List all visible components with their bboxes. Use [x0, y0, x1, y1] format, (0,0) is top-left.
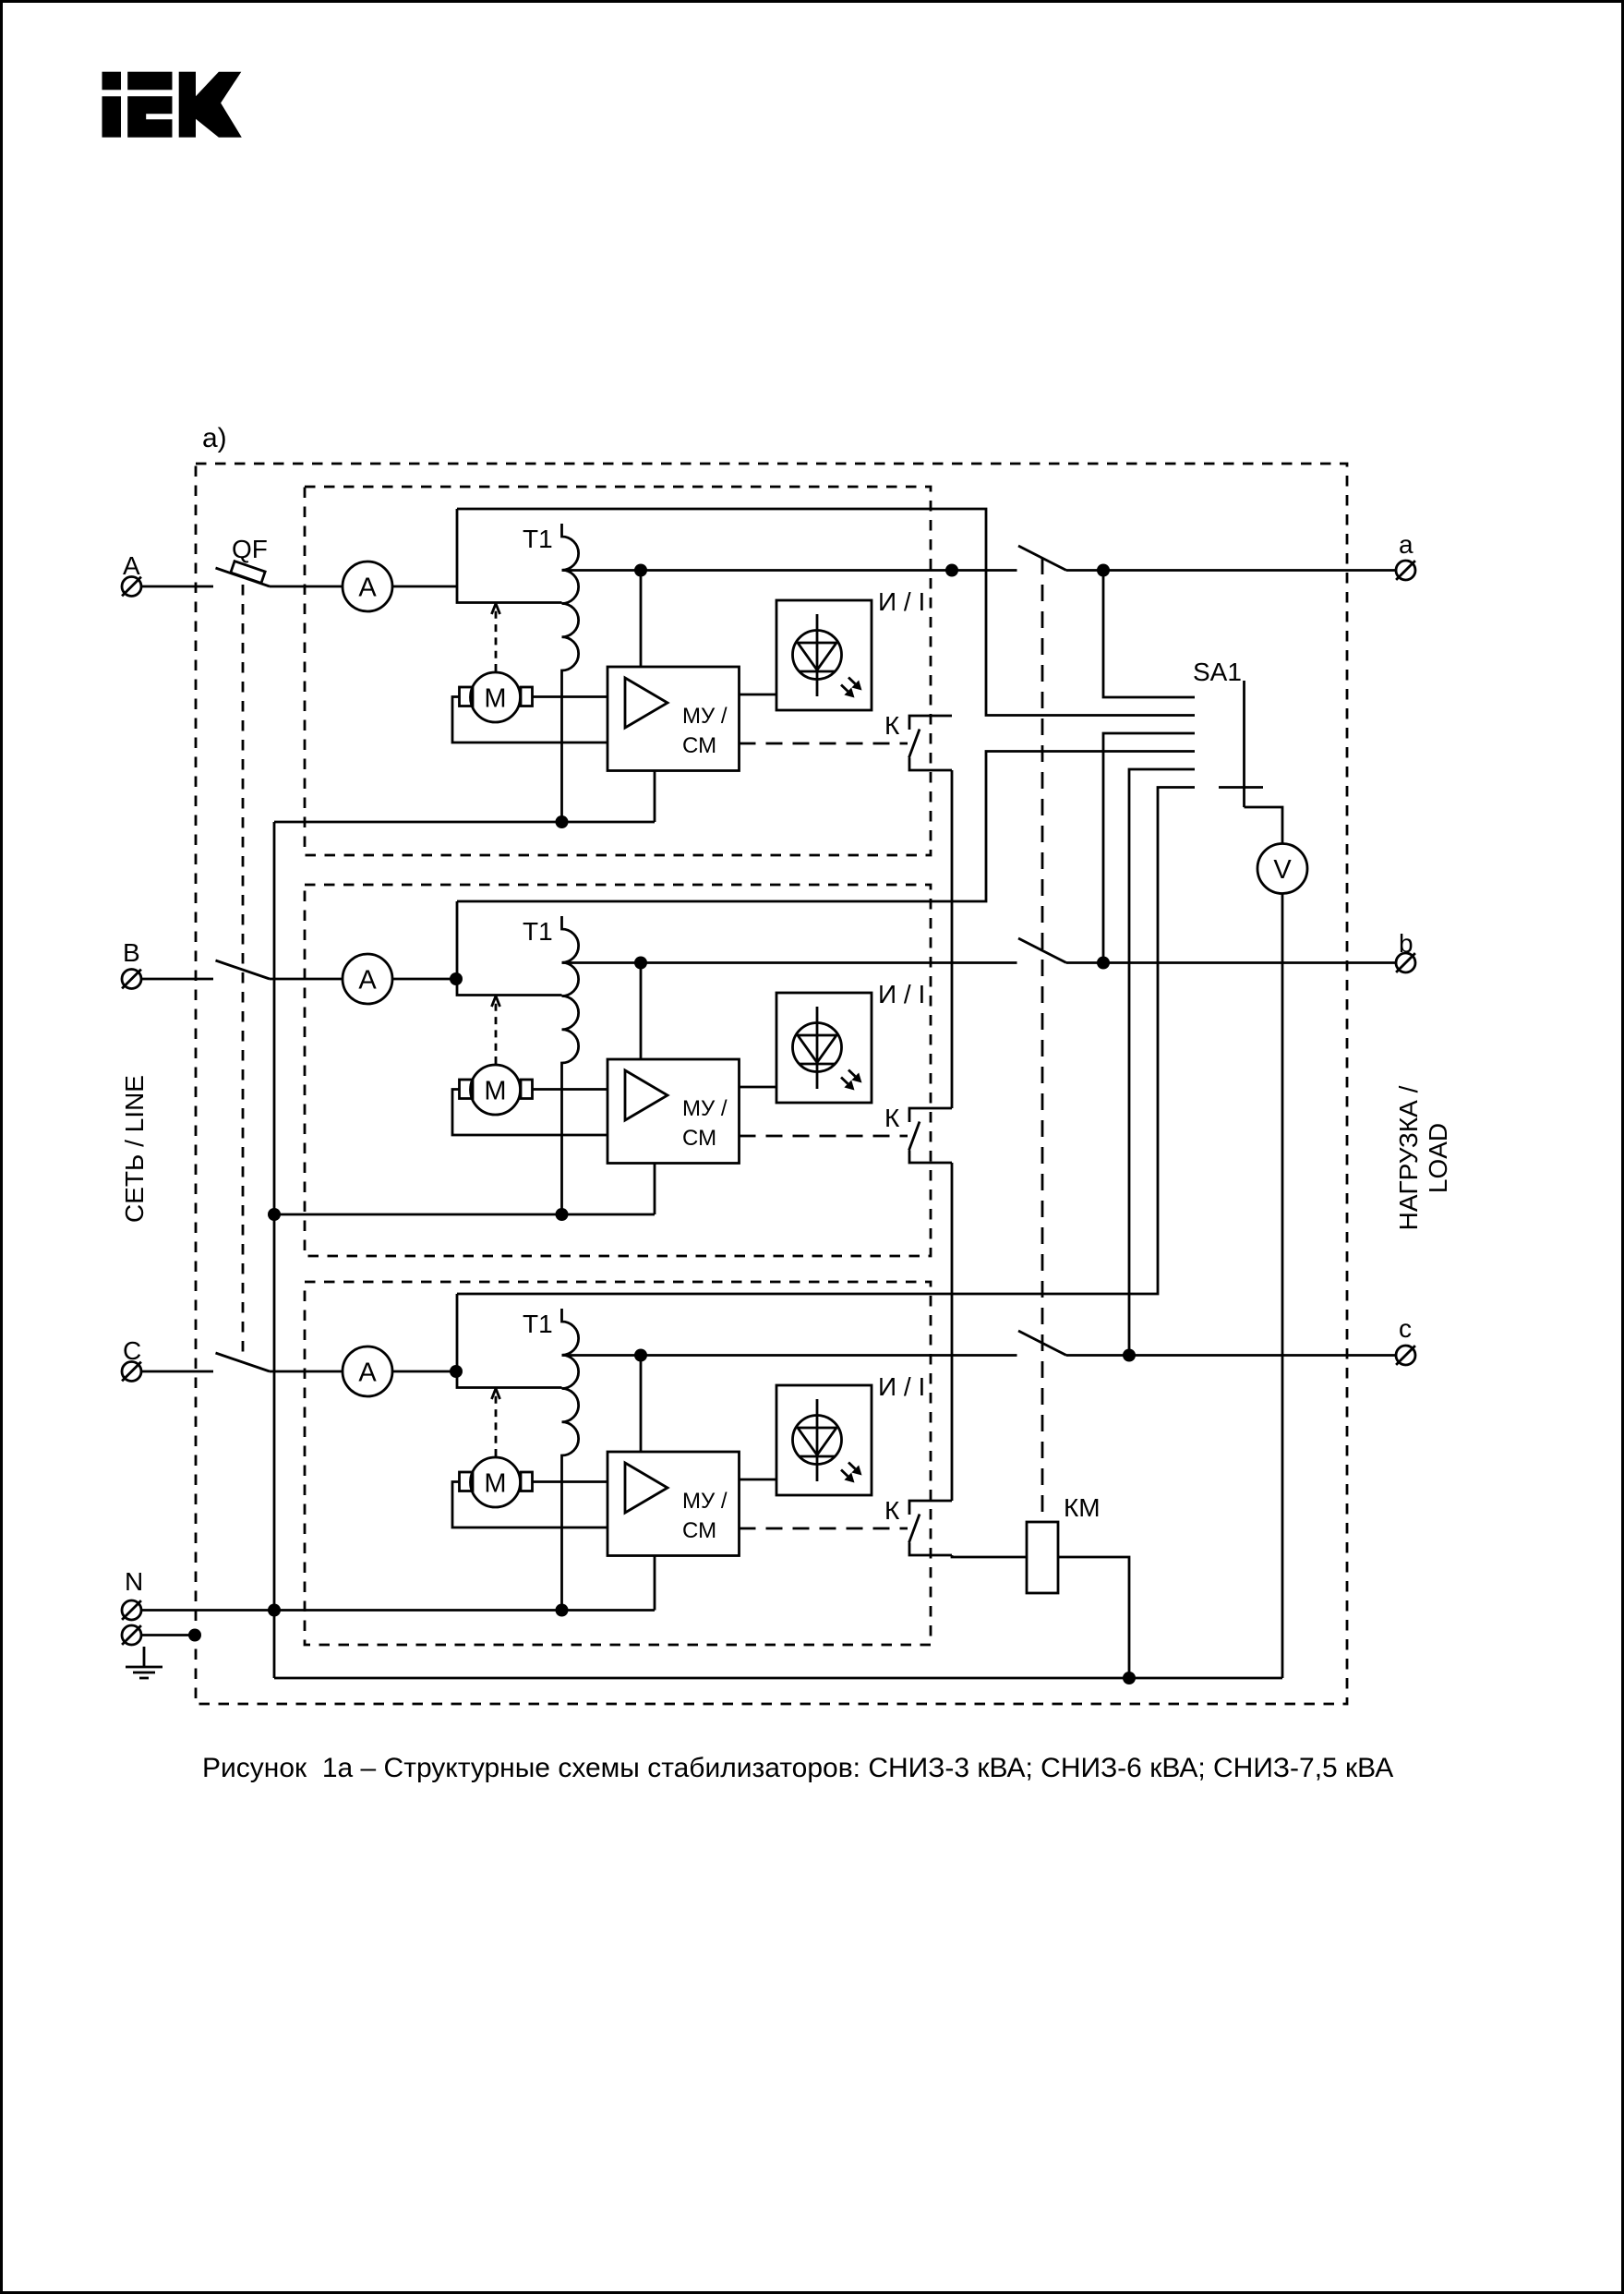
- svg-text:К: К: [884, 711, 900, 740]
- svg-text:КМ: КМ: [1064, 1493, 1101, 1522]
- svg-text:А: А: [123, 551, 140, 580]
- svg-text:c: c: [1399, 1314, 1412, 1343]
- svg-text:А: А: [358, 1358, 377, 1388]
- svg-text:СЕТЬ / LINE: СЕТЬ / LINE: [120, 1075, 149, 1223]
- svg-text:МУ /: МУ /: [682, 704, 728, 729]
- svg-text:К: К: [884, 1496, 900, 1525]
- svg-text:С: С: [123, 1336, 141, 1365]
- svg-text:И / I: И / I: [878, 980, 925, 1008]
- svg-text:a: a: [1399, 530, 1413, 559]
- svg-text:М: М: [484, 684, 506, 714]
- svg-text:LOAD: LOAD: [1424, 1123, 1452, 1193]
- svg-text:МУ /: МУ /: [682, 1096, 728, 1121]
- svg-text:СМ: СМ: [682, 1126, 716, 1151]
- svg-text:НАГРУЗКА /: НАГРУЗКА /: [1394, 1085, 1423, 1230]
- svg-text:СМ: СМ: [682, 1518, 716, 1543]
- svg-text:SA1: SA1: [1193, 658, 1242, 686]
- svg-text:И / I: И / I: [878, 1372, 925, 1401]
- svg-text:Т1: Т1: [523, 525, 553, 553]
- svg-text:а): а): [202, 423, 227, 453]
- svg-text:Т1: Т1: [523, 917, 553, 946]
- svg-text:Рисунок 1а – Структурные схем: Рисунок 1а – Структурные схемы стабилиза…: [202, 1753, 1393, 1783]
- svg-text:МУ /: МУ /: [682, 1489, 728, 1514]
- svg-text:М: М: [484, 1469, 506, 1499]
- svg-text:Т1: Т1: [523, 1310, 553, 1338]
- svg-text:К: К: [884, 1104, 900, 1132]
- svg-text:А: А: [358, 966, 377, 996]
- svg-text:В: В: [123, 938, 140, 967]
- svg-text:b: b: [1399, 929, 1413, 958]
- svg-text:А: А: [358, 573, 377, 603]
- svg-text:V: V: [1273, 855, 1292, 885]
- svg-text:N: N: [125, 1567, 143, 1596]
- svg-text:СМ: СМ: [682, 733, 716, 758]
- svg-text:QF: QF: [232, 535, 268, 563]
- svg-text:М: М: [484, 1077, 506, 1106]
- svg-text:И / I: И / I: [878, 587, 925, 616]
